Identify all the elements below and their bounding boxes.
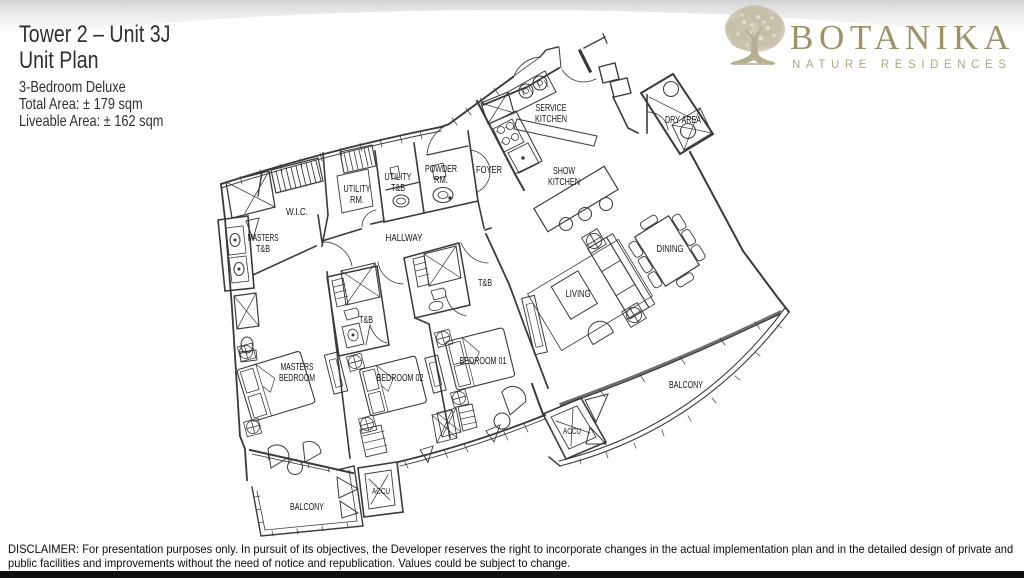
svg-text:T&B: T&B: [359, 314, 373, 326]
svg-text:BALCONY: BALCONY: [290, 501, 324, 513]
svg-text:BEDROOM: BEDROOM: [279, 372, 315, 384]
svg-text:W.I.C.: W.I.C.: [286, 206, 308, 218]
svg-text:T&B: T&B: [478, 277, 492, 289]
svg-text:DRY AREA: DRY AREA: [665, 114, 701, 126]
svg-text:BEDROOM 02: BEDROOM 02: [377, 372, 424, 384]
svg-text:BALCONY: BALCONY: [669, 379, 703, 391]
svg-text:FOYER: FOYER: [476, 164, 502, 176]
svg-text:RM.: RM.: [434, 174, 448, 186]
svg-text:T&B: T&B: [256, 243, 270, 255]
svg-text:ACCU: ACCU: [372, 486, 390, 496]
svg-text:ACCU: ACCU: [563, 426, 581, 436]
svg-text:KITCHEN: KITCHEN: [535, 113, 567, 125]
svg-text:RM.: RM.: [350, 194, 364, 206]
svg-text:DINING: DINING: [657, 243, 684, 255]
svg-text:HALLWAY: HALLWAY: [386, 232, 423, 244]
svg-text:BEDROOM 01: BEDROOM 01: [460, 355, 507, 367]
svg-text:LIVING: LIVING: [566, 288, 591, 300]
svg-text:T&B: T&B: [391, 182, 405, 194]
svg-text:KITCHEN: KITCHEN: [548, 176, 580, 188]
